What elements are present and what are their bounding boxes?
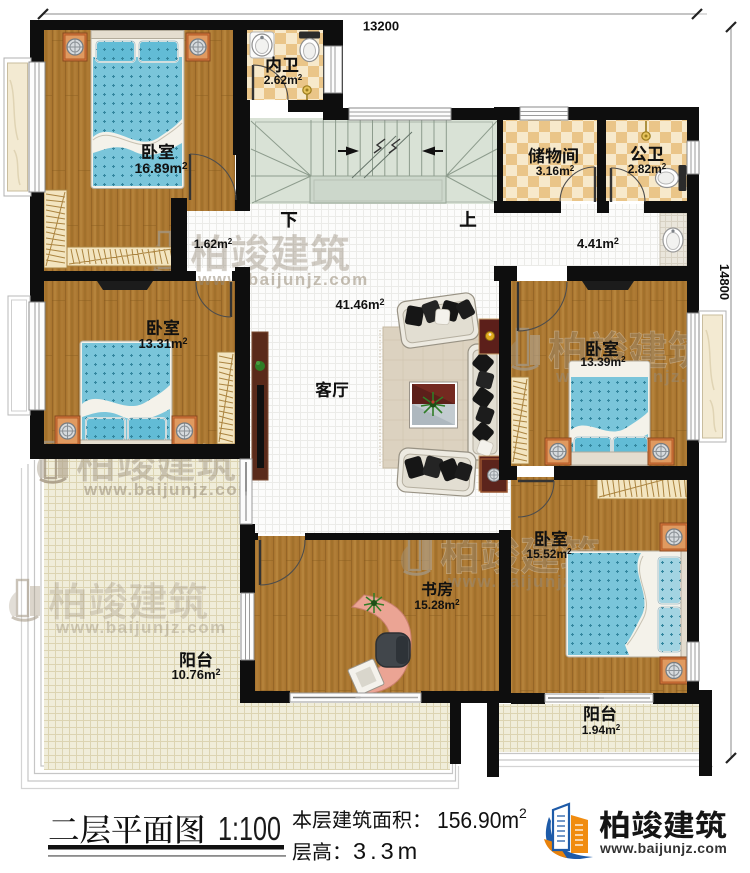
- svg-text:1.62m2: 1.62m2: [194, 237, 233, 251]
- svg-text:156.90m: 156.90m: [437, 807, 519, 833]
- svg-text:2.82m2: 2.82m2: [628, 162, 667, 176]
- svg-text:13.31m2: 13.31m2: [138, 336, 187, 351]
- svg-text:3.16m2: 3.16m2: [536, 164, 575, 178]
- svg-text:41.46m2: 41.46m2: [335, 297, 384, 312]
- svg-text:14800: 14800: [717, 264, 732, 300]
- svg-text:4.41m2: 4.41m2: [577, 236, 619, 251]
- svg-text:2.62m2: 2.62m2: [264, 73, 303, 87]
- svg-text:1:100: 1:100: [218, 810, 281, 847]
- svg-text:www.baijunjz.com: www.baijunjz.com: [55, 618, 227, 637]
- svg-text:www.baijunjz.com: www.baijunjz.com: [83, 480, 255, 499]
- svg-text:www.baijunjz.com: www.baijunjz.com: [599, 840, 727, 856]
- svg-text:1.94m2: 1.94m2: [582, 723, 621, 737]
- svg-text:10.76m2: 10.76m2: [171, 667, 220, 682]
- svg-text:13.39m2: 13.39m2: [580, 355, 626, 369]
- svg-text:15.28m2: 15.28m2: [414, 598, 460, 612]
- svg-text:13200: 13200: [363, 19, 399, 34]
- svg-text:www.baijunjz.com: www.baijunjz.com: [197, 270, 369, 289]
- svg-text:3.3m: 3.3m: [353, 838, 421, 864]
- svg-text:15.52m2: 15.52m2: [526, 547, 572, 561]
- svg-text:16.89m2: 16.89m2: [134, 160, 187, 176]
- svg-text:2: 2: [519, 805, 527, 821]
